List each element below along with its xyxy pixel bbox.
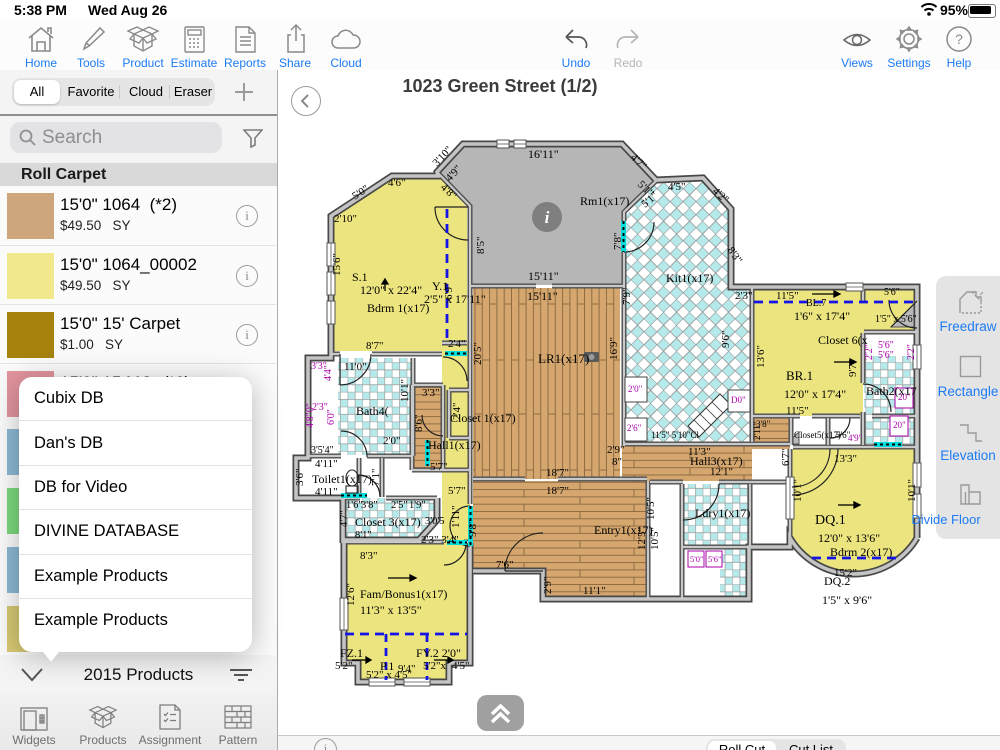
svg-text:2'2": 2'2" <box>864 344 875 360</box>
svg-text:BL.7: BL.7 <box>806 298 826 309</box>
svg-text:7'1": 7'1" <box>370 469 382 486</box>
svg-text:6'0": 6'0" <box>326 409 337 425</box>
svg-text:2'3" 3'4": 2'3" 3'4" <box>421 534 459 546</box>
svg-text:10'1": 10'1" <box>792 479 804 502</box>
svg-text:DQ.1: DQ.1 <box>815 513 846 528</box>
svg-text:12'0" x 22'4": 12'0" x 22'4" <box>360 283 422 297</box>
svg-text:?: ? <box>955 31 963 47</box>
svg-text:Kit1(x17): Kit1(x17) <box>666 271 713 285</box>
svg-text:5'6": 5'6" <box>878 350 894 361</box>
svg-text:16'9": 16'9" <box>608 337 620 360</box>
svg-text:11'5": 11'5" <box>786 405 809 417</box>
svg-text:5'6": 5'6" <box>884 287 900 298</box>
svg-text:12'1": 12'1" <box>710 466 733 478</box>
svg-text:Closet5(x17): Closet5(x17) <box>794 430 841 440</box>
svg-text:Closet 6(x: Closet 6(x <box>818 333 868 347</box>
svg-text:DQ.2: DQ.2 <box>824 574 850 588</box>
svg-text:1'11": 1'11" <box>450 505 462 528</box>
svg-text:5'7": 5'7" <box>448 485 465 497</box>
svg-text:FZ.1: FZ.1 <box>340 646 363 660</box>
svg-text:8'1": 8'1" <box>355 530 372 541</box>
svg-text:11'5": 11'5" <box>776 290 799 302</box>
svg-text:2'0": 2'0" <box>628 384 643 394</box>
svg-text:16'11": 16'11" <box>528 147 559 161</box>
svg-text:S.1: S.1 <box>352 270 368 284</box>
svg-text:7'9": 7'9" <box>621 288 633 305</box>
svg-text:10'5": 10'5" <box>645 497 657 520</box>
svg-text:1'6" x 17'4": 1'6" x 17'4" <box>794 309 850 323</box>
svg-text:i: i <box>545 208 550 227</box>
svg-text:18'7": 18'7" <box>546 467 569 479</box>
svg-text:4'4": 4'4" <box>323 365 334 381</box>
svg-text:9'8": 9'8" <box>467 520 479 537</box>
svg-text:Hall1(x17): Hall1(x17) <box>428 438 481 452</box>
svg-text:7'8": 7'8" <box>612 233 624 250</box>
svg-text:3'3": 3'3" <box>422 387 439 399</box>
svg-text:8'6": 8'6" <box>413 415 425 432</box>
svg-text:1'5" x 9'6": 1'5" x 9'6" <box>822 593 872 607</box>
svg-text:4'11": 4'11" <box>315 458 338 470</box>
svg-text:Bdrm 1(x17): Bdrm 1(x17) <box>367 301 429 315</box>
svg-text:20": 20" <box>893 420 906 430</box>
svg-text:9'4": 9'4" <box>398 663 415 675</box>
svg-text:3'5'4": 3'5'4" <box>311 445 334 456</box>
svg-text:Closet 3(x17): Closet 3(x17) <box>355 515 421 529</box>
svg-text:3'6": 3'6" <box>294 469 306 486</box>
svg-text:11'0": 11'0" <box>344 361 367 373</box>
svg-text:11'1": 11'1" <box>583 585 606 597</box>
svg-text:12'0" x 13'6": 12'0" x 13'6" <box>818 531 880 545</box>
svg-text:5'0": 5'0" <box>690 554 704 564</box>
svg-text:Toilet1(x17): Toilet1(x17) <box>312 472 372 486</box>
svg-text:5'2"x: 5'2"x <box>423 660 446 672</box>
svg-text:Bath2(x17: Bath2(x17 <box>866 384 917 398</box>
svg-text:4'9": 4'9" <box>848 433 863 443</box>
svg-text:3'0'5: 3'0'5 <box>425 516 445 527</box>
svg-text:11'5" 5'10"Cl: 11'5" 5'10"Cl <box>651 430 700 440</box>
svg-text:LR1(x17): LR1(x17) <box>538 351 589 366</box>
svg-text:D0": D0" <box>731 395 746 405</box>
svg-text:BR.1: BR.1 <box>786 368 813 383</box>
svg-text:3'8": 3'8" <box>361 500 378 511</box>
svg-text:5'6": 5'6" <box>708 554 722 564</box>
svg-text:Bath4(: Bath4( <box>356 404 389 418</box>
svg-text:4'11": 4'11" <box>315 486 338 498</box>
svg-text:7'6": 7'6" <box>496 559 513 571</box>
svg-text:Bdrm 2(x17): Bdrm 2(x17) <box>830 545 892 559</box>
svg-text:15'11": 15'11" <box>528 269 559 283</box>
svg-text:1'9": 1'9" <box>409 500 426 511</box>
svg-text:5'7": 5'7" <box>430 461 447 473</box>
svg-text:Rm1(x17): Rm1(x17) <box>580 194 629 208</box>
svg-text:6'9": 6'9" <box>443 283 455 300</box>
svg-text:2'4": 2'4" <box>448 338 465 350</box>
svg-text:9'6": 9'6" <box>720 331 732 348</box>
svg-text:FY.2 2'0": FY.2 2'0" <box>416 646 461 660</box>
svg-text:2'6": 2'6" <box>627 423 642 433</box>
svg-text:6'7": 6'7" <box>780 449 792 466</box>
svg-text:2'3": 2'3" <box>735 290 752 302</box>
svg-text:2'0": 2'0" <box>383 435 400 447</box>
svg-text:2'4": 2'4" <box>451 403 463 420</box>
svg-text:2'9": 2'9" <box>542 577 554 594</box>
svg-text:13'6": 13'6" <box>755 345 767 368</box>
svg-text:20'5": 20'5" <box>472 342 484 365</box>
svg-text:10'1": 10'1" <box>399 379 411 402</box>
svg-text:12'6": 12'6" <box>345 583 357 606</box>
svg-text:4'7": 4'7" <box>339 510 350 527</box>
svg-text:11'3" x 13'5": 11'3" x 13'5" <box>360 603 422 617</box>
svg-text:12'0" x 17'4": 12'0" x 17'4" <box>784 387 846 401</box>
svg-text:13'3": 13'3" <box>834 453 857 465</box>
svg-text:1'5" x 5'6": 1'5" x 5'6" <box>875 314 917 325</box>
svg-text:15'11": 15'11" <box>527 289 558 303</box>
svg-text:2'5": 2'5" <box>391 500 408 511</box>
svg-text:4'8"0": 4'8"0" <box>305 403 316 428</box>
svg-text:Fam/Bonus1(x17): Fam/Bonus1(x17) <box>360 587 447 601</box>
svg-text:12'5": 12'5" <box>636 527 648 550</box>
svg-text:8'3": 8'3" <box>360 550 377 562</box>
svg-text:2'11": 2'11" <box>752 421 762 440</box>
svg-text:15'6": 15'6" <box>331 253 343 276</box>
svg-text:4'5": 4'5" <box>452 660 469 672</box>
svg-text:8": 8" <box>612 456 622 468</box>
svg-text:8'5": 8'5" <box>475 237 487 254</box>
svg-text:5'2": 5'2" <box>335 660 352 672</box>
svg-text:10'1": 10'1" <box>906 479 918 502</box>
svg-text:18'7": 18'7" <box>546 485 569 497</box>
svg-text:4'6": 4'6" <box>388 177 405 189</box>
svg-text:Ldry1(x17): Ldry1(x17) <box>695 506 750 520</box>
svg-text:2'2": 2'2" <box>906 344 917 360</box>
svg-text:4'5": 4'5" <box>668 181 685 193</box>
svg-text:8'7": 8'7" <box>366 340 383 352</box>
svg-text:2'10": 2'10" <box>334 213 357 225</box>
svg-text:10'5": 10'5" <box>649 527 661 550</box>
svg-text:2'9": 2'9" <box>607 444 624 456</box>
